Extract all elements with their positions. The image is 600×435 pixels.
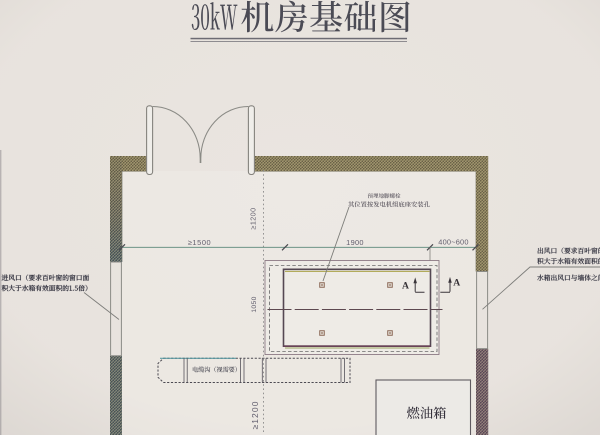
svg-text:A: A: [453, 277, 460, 288]
svg-text:≥1200: ≥1200: [250, 400, 260, 429]
svg-text:≥1200: ≥1200: [249, 208, 258, 230]
svg-text:≥1500: ≥1500: [188, 238, 212, 247]
svg-text:A: A: [402, 280, 409, 291]
svg-text:1900: 1900: [346, 238, 364, 247]
svg-text:1050: 1050: [251, 296, 258, 312]
svg-text:400~600: 400~600: [438, 238, 468, 247]
